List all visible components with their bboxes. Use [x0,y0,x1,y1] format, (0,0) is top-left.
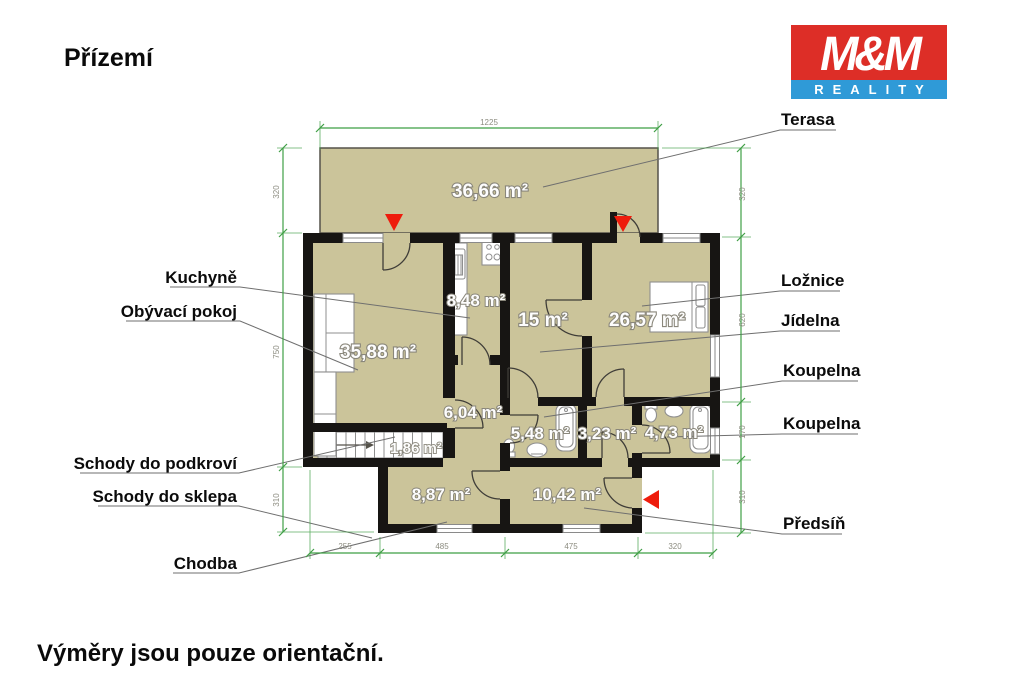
dim-left-1: 750 [272,345,281,359]
room-area-kuchyne: 8,48 m² [447,291,506,310]
room-label-koupelna-1: Koupelna [783,361,860,381]
room-label-kuchyne: Kuchyně [165,268,237,288]
room-label-jidelna: Jídelna [781,311,840,331]
room-label-schody-do-sklepa: Schody do sklepa [92,487,237,507]
room-label-koupelna-2: Koupelna [783,414,860,434]
dim-left-0: 320 [272,185,281,199]
dim-top: 1225 [480,118,498,127]
room-fills [303,148,720,533]
dim-right-0: 320 [738,187,747,201]
dim-bottom-2: 475 [564,542,578,551]
room-area-koupelna-1: 5,48 m² [511,424,570,443]
dim-right-1: 620 [738,313,747,327]
disclaimer-text: Výměry jsou pouze orientační. [37,640,384,668]
page: { "title": "Přízemí", "disclaimer": "Vým… [0,0,1024,683]
room-area-wc: 3,23 m² [578,424,637,443]
room-label-terasa: Terasa [781,110,835,130]
entrance-arrow-main-door [643,490,659,509]
room-label-obyvaci-pokoj: Obývací pokoj [121,302,237,322]
room-area-obyvaci-pokoj: 35,88 m² [340,342,416,363]
room-area-loznice: 26,57 m² [609,310,685,331]
room-area-hala: 6,04 m² [444,403,503,422]
sink-icon [527,443,547,457]
floor-plan: 1225 320 750 310 320 620 170 310 255 485… [0,0,1024,683]
dim-bottom-0: 255 [338,542,352,551]
room-area-predsin: 10,42 m² [533,485,601,504]
room-area-terasa: 36,66 m² [452,181,528,202]
sink-icon-2 [665,405,683,417]
dim-right-2: 170 [738,425,747,439]
room-label-loznice: Ložnice [781,271,844,291]
room-area-jidelna: 15 m² [518,310,568,331]
dim-bottom-3: 320 [668,542,682,551]
room-label-schody-do-podkrovi: Schody do podkroví [74,454,237,474]
toilet-icon-2 [645,404,657,422]
dim-left-2: 310 [272,493,281,507]
room-area-koupelna-2: 4,73 m² [645,423,704,442]
room-area-schody: 1,86 m² [390,440,442,457]
dim-bottom-1: 485 [435,542,449,551]
room-label-predsin: Předsíň [783,514,845,534]
room-area-chodba: 8,87 m² [412,485,471,504]
dim-right-3: 310 [738,490,747,504]
room-label-chodba: Chodba [174,554,237,574]
